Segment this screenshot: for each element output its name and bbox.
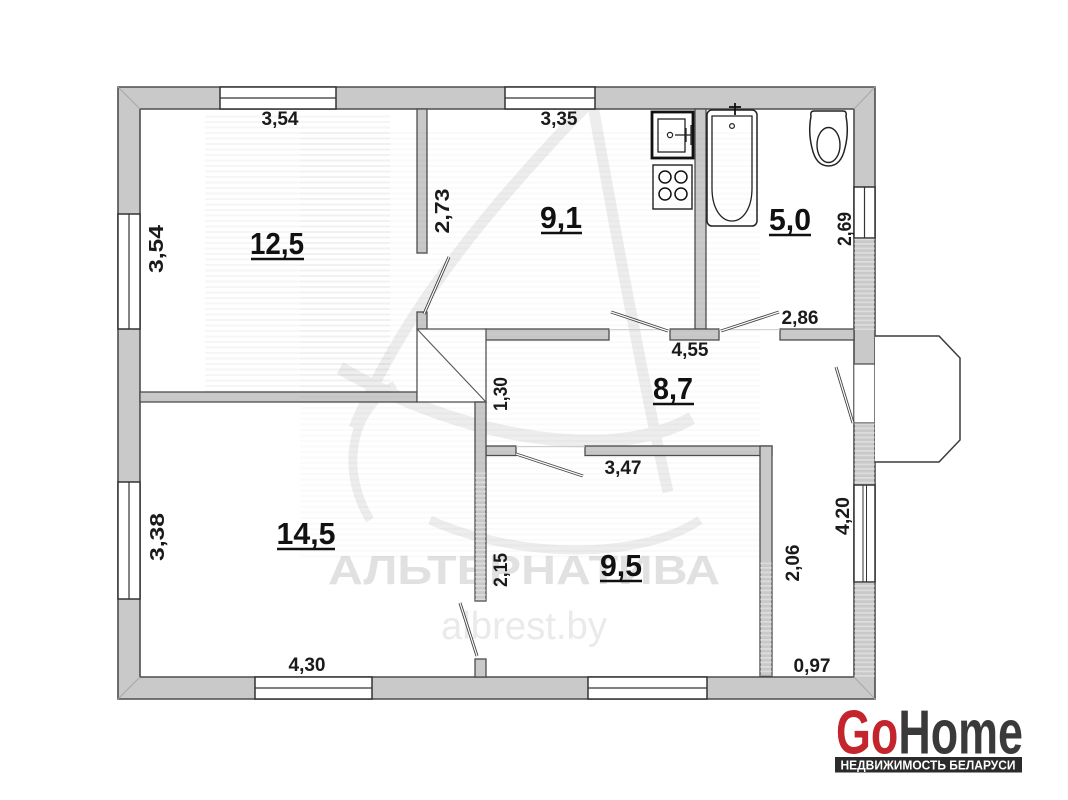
- svg-text:8,7: 8,7: [653, 371, 693, 406]
- svg-text:3,47: 3,47: [605, 458, 642, 479]
- svg-text:2,86: 2,86: [782, 308, 819, 329]
- svg-text:2,73: 2,73: [432, 189, 454, 234]
- svg-text:3,38: 3,38: [147, 513, 169, 561]
- svg-text:1,30: 1,30: [491, 377, 512, 411]
- svg-text:2,06: 2,06: [783, 545, 804, 582]
- svg-text:3,54: 3,54: [146, 224, 168, 273]
- svg-text:14,5: 14,5: [277, 516, 336, 551]
- svg-text:9,5: 9,5: [600, 548, 642, 583]
- svg-text:НЕДВИЖИМОСТЬ БЕЛАРУСИ: НЕДВИЖИМОСТЬ БЕЛАРУСИ: [841, 758, 1016, 773]
- svg-text:5,0: 5,0: [769, 202, 811, 237]
- svg-text:3,35: 3,35: [541, 109, 578, 130]
- svg-text:4,20: 4,20: [833, 497, 854, 535]
- svg-text:0,97: 0,97: [794, 656, 831, 677]
- svg-text:3,54: 3,54: [262, 109, 299, 130]
- svg-text:4,55: 4,55: [672, 340, 709, 361]
- svg-text:4,30: 4,30: [289, 655, 326, 676]
- svg-text:2,15: 2,15: [491, 553, 512, 587]
- svg-text:9,1: 9,1: [540, 200, 582, 235]
- svg-text:12,5: 12,5: [250, 226, 304, 261]
- svg-text:2,69: 2,69: [835, 212, 856, 246]
